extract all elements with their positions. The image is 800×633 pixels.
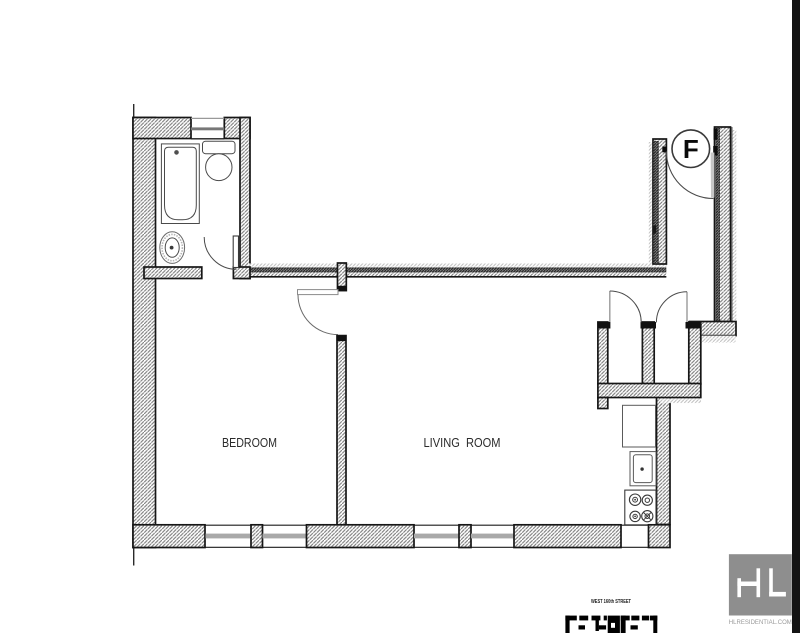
svg-text:BEDROOM: BEDROOM	[222, 435, 277, 450]
svg-text:LIVING ROOM: LIVING ROOM	[424, 435, 501, 450]
svg-text:WEST 160th STREET: WEST 160th STREET	[591, 599, 631, 605]
svg-text:F: F	[683, 134, 699, 164]
svg-text:HLRESIDENTIAL.COM: HLRESIDENTIAL.COM	[729, 619, 792, 626]
